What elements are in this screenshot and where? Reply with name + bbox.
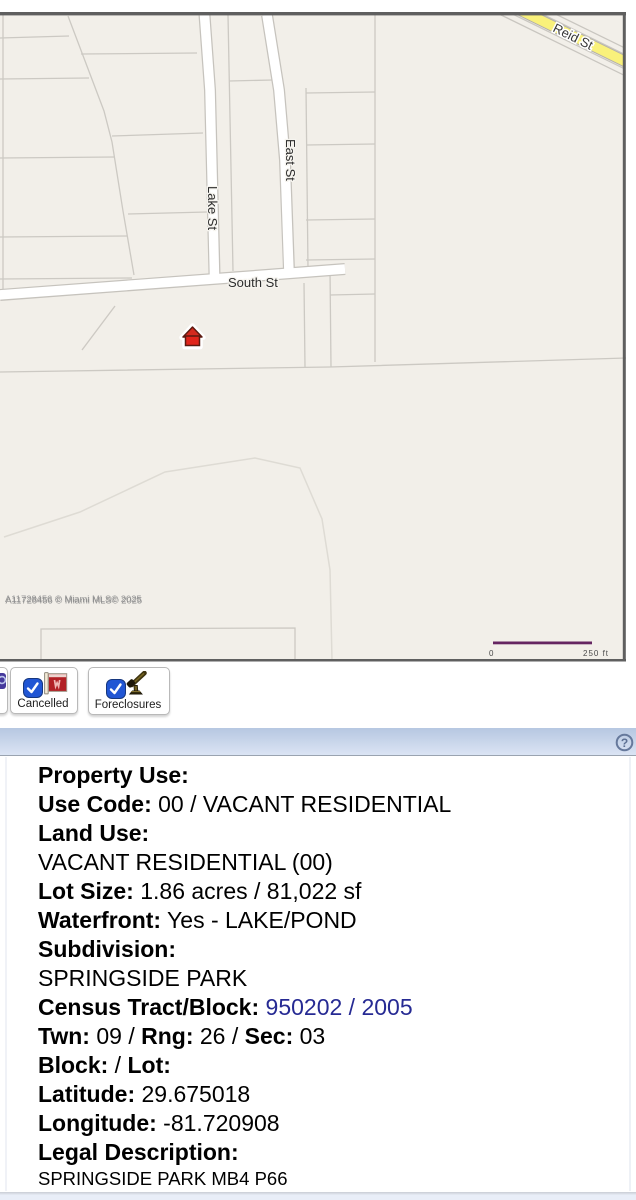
- svg-text:0: 0: [489, 649, 494, 658]
- svg-text:Lake St: Lake St: [205, 186, 220, 230]
- svg-text:?: ?: [621, 736, 628, 750]
- svg-text:A11728456 © Miami MLS© 2025: A11728456 © Miami MLS© 2025: [6, 595, 143, 606]
- svg-text:250 ft: 250 ft: [583, 649, 609, 658]
- svg-text:South St: South St: [228, 275, 278, 290]
- svg-text:East St: East St: [283, 139, 298, 181]
